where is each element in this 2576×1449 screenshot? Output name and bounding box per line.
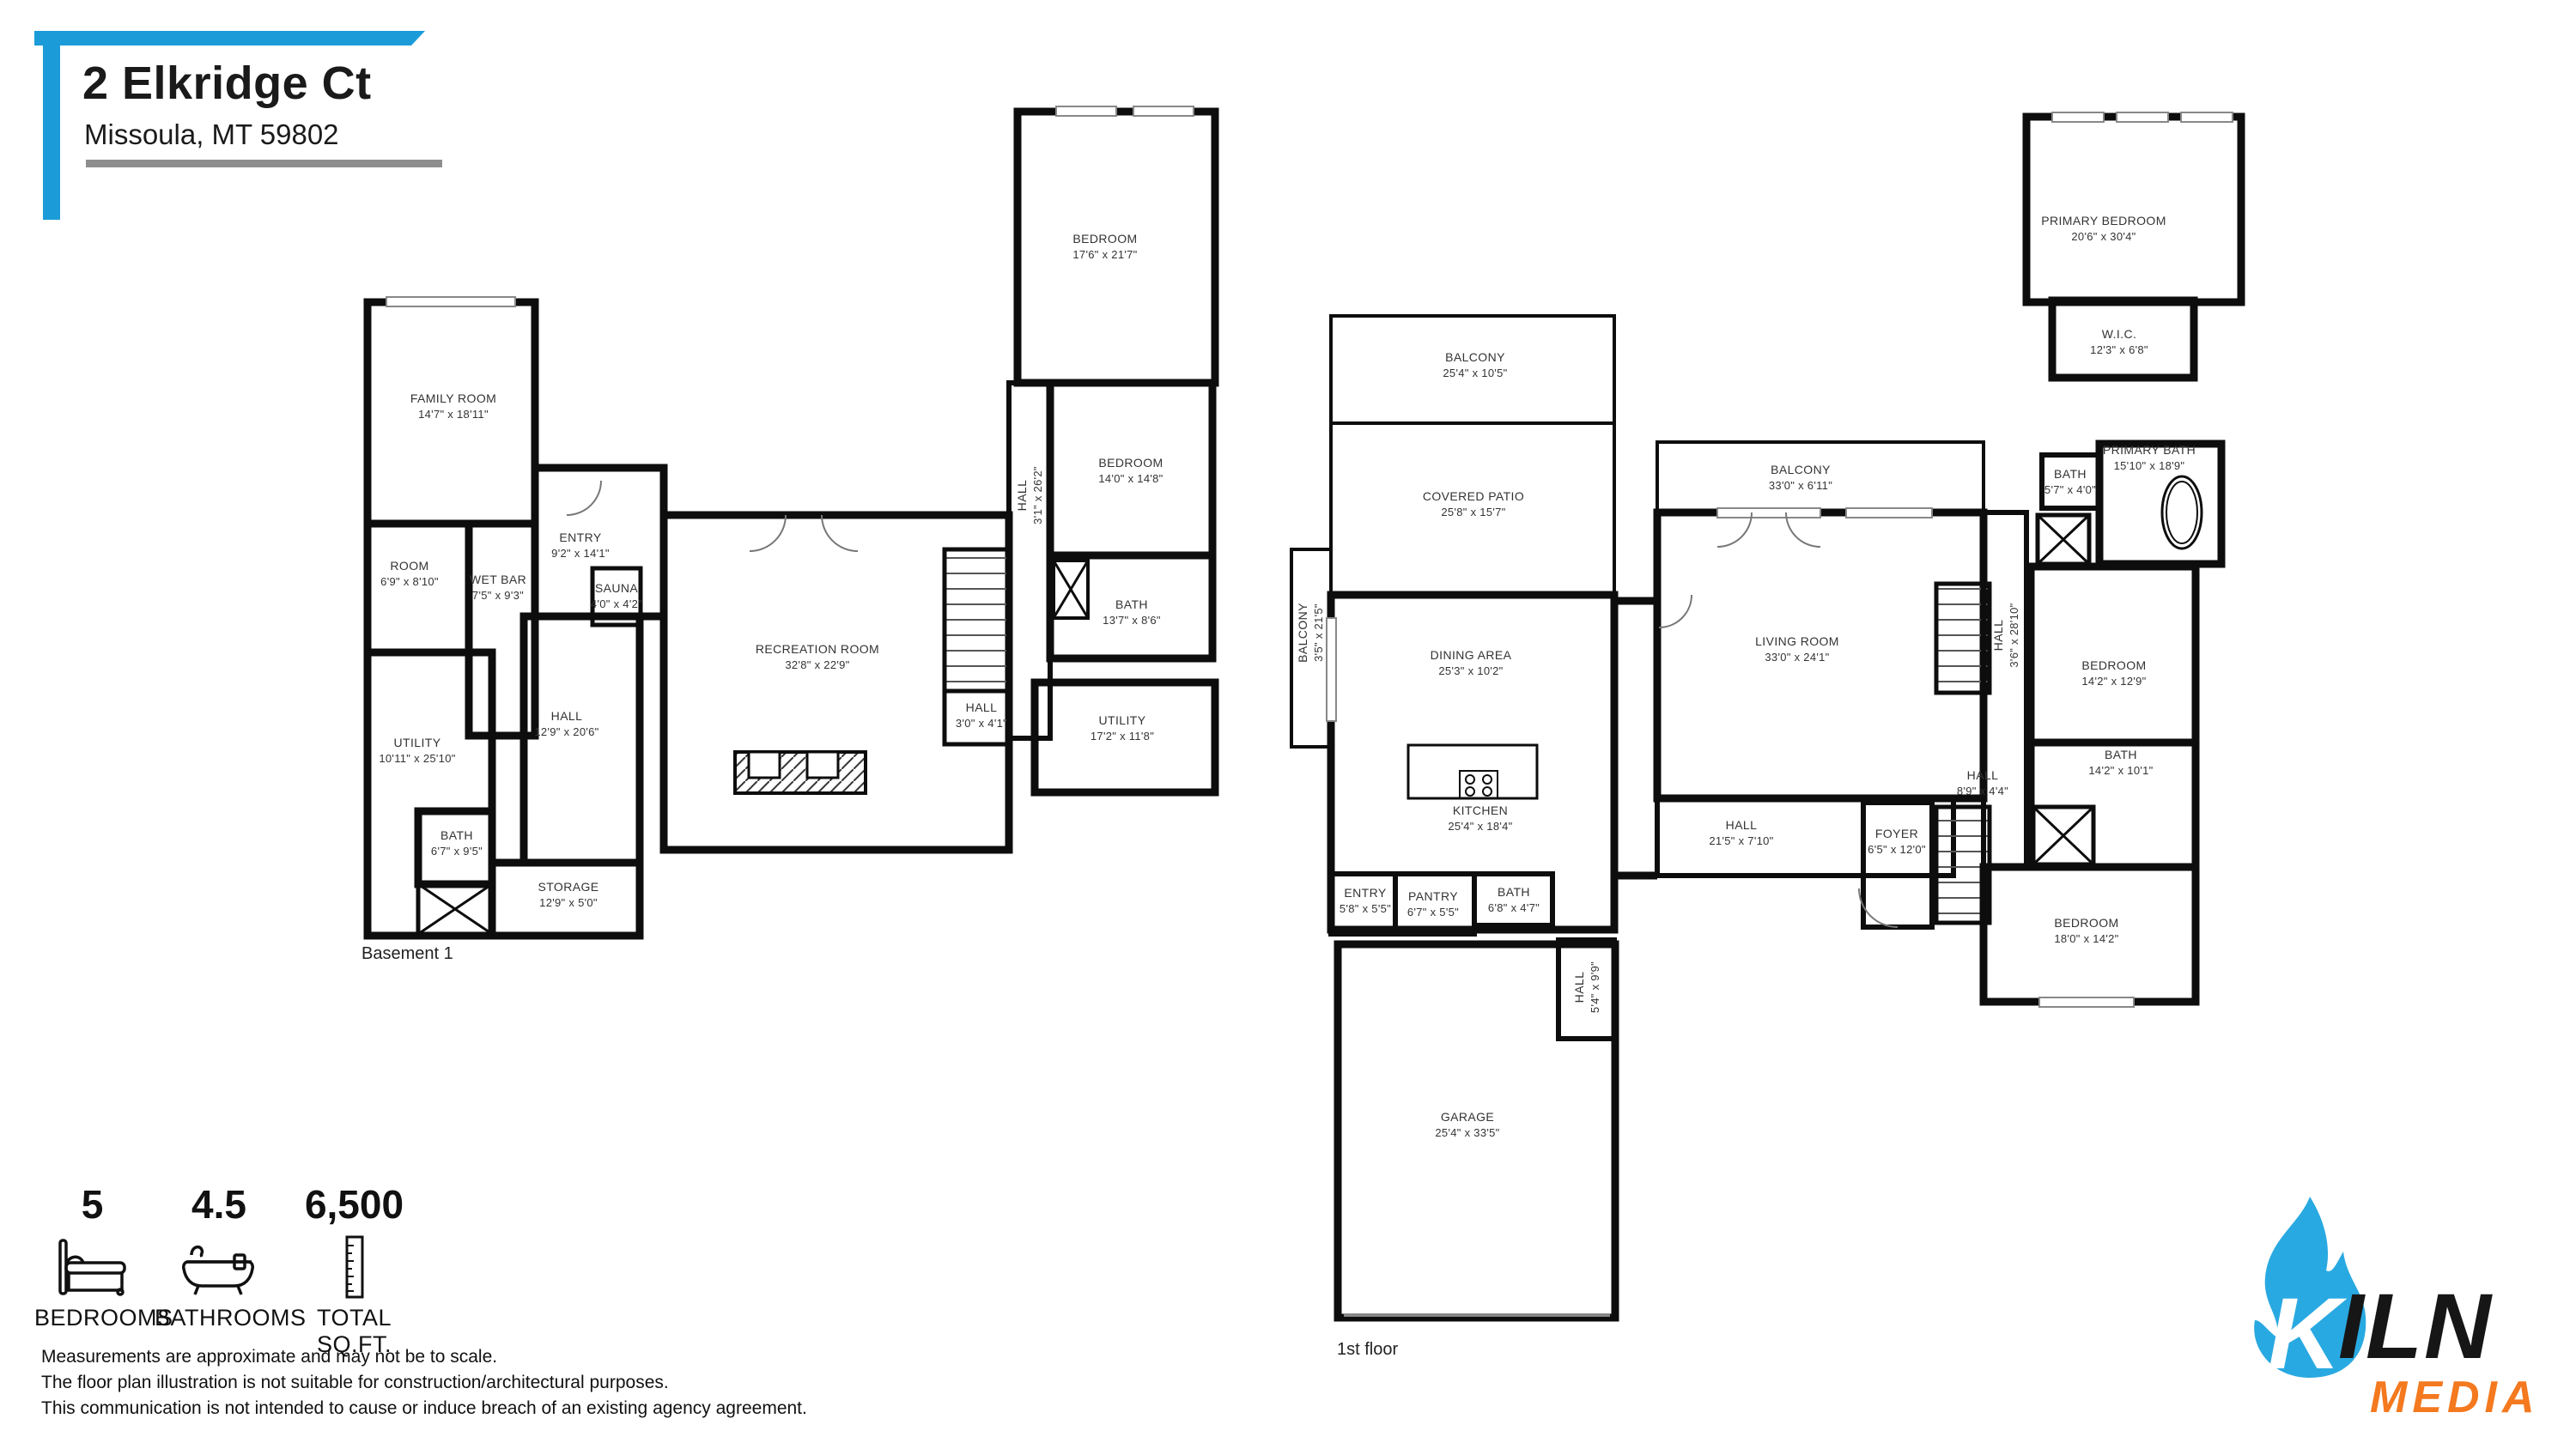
room-label: DINING AREA25'3" x 10'2" [1431, 648, 1512, 677]
room-label: BEDROOM14'0" x 14'8" [1098, 456, 1163, 485]
room-label: UTILITY17'2" x 11'8" [1091, 713, 1154, 743]
room-label: ENTRY9'2" x 14'1" [551, 530, 610, 560]
bed-icon [34, 1234, 150, 1300]
room-label: HALL3'1" x 26'2" [1015, 466, 1044, 524]
bedrooms-label: BEDROOMS [34, 1305, 150, 1331]
room-label: HALL8'9" x 4'4" [1957, 768, 2008, 797]
room-label: BATH6'8" x 4'7" [1488, 885, 1540, 914]
room-label: FOYER6'5" x 12'0" [1868, 827, 1926, 856]
room-label: KITCHEN25'4" x 18'4" [1448, 803, 1512, 833]
stat-sqft: 6,500 TOTAL SQ.FT. [279, 1181, 429, 1358]
room-label: HALL3'6" x 28'10" [1991, 603, 2020, 667]
room-label: BALCONY33'0" x 6'11" [1769, 463, 1832, 492]
room-label: HALL3'0" x 4'1" [956, 700, 1007, 730]
bathrooms-label: BATHROOMS [155, 1305, 283, 1331]
room-label: PANTRY6'7" x 5'5" [1407, 889, 1459, 919]
room-label: GARAGE25'4" x 33'5" [1435, 1110, 1499, 1139]
ruler-icon [279, 1234, 429, 1300]
room-label: BEDROOM17'6" x 21'7" [1072, 232, 1137, 261]
room-label: BATH14'2" x 10'1" [2088, 748, 2153, 777]
room-label: ROOM6'9" x 8'10" [380, 559, 439, 588]
sqft-count: 6,500 [279, 1181, 429, 1228]
first-floor-caption: 1st floor [1337, 1340, 1398, 1360]
disclaimer-line-2: The floor plan illustration is not suita… [41, 1370, 807, 1396]
disclaimer-text: Measurements are approximate and may not… [41, 1344, 807, 1422]
room-label: HALL12'9" x 20'6" [534, 709, 598, 738]
room-label: BEDROOM14'2" x 12'9" [2081, 658, 2146, 688]
floorplan-page: 2 Elkridge Ct Missoula, MT 59802 [0, 0, 2576, 1449]
logo-text-media: MEDIA [2370, 1372, 2540, 1423]
logo-letter-k: K [2268, 1276, 2341, 1392]
logo-text-iln: ILN [2338, 1272, 2493, 1379]
room-label: FAMILY ROOM14'7" x 18'11" [410, 391, 496, 421]
room-label: W.I.C.12'3" x 6'8" [2090, 327, 2148, 356]
disclaimer-line-3: This communication is not intended to ca… [41, 1396, 807, 1422]
room-label: BEDROOM18'0" x 14'2" [2054, 916, 2118, 945]
basement-caption: Basement 1 [361, 944, 453, 964]
room-label: BATH5'7" x 4'0" [2044, 467, 2096, 496]
room-label: HALL5'4" x 9'9" [1572, 961, 1601, 1013]
room-label: PRIMARY BEDROOM20'6" x 30'4" [2041, 214, 2166, 243]
room-label: WET BAR7'5" x 9'3" [470, 573, 526, 602]
room-label: BALCONY3'5" x 21'5" [1296, 603, 1325, 663]
stat-bedrooms: 5 BEDROOMS [34, 1181, 150, 1331]
room-label: RECREATION ROOM32'8" x 22'9" [756, 642, 879, 671]
room-label: PRIMARY BATH15'10" x 18'9" [2103, 443, 2196, 472]
room-label: HALL21'5" x 7'10" [1709, 818, 1773, 847]
bathrooms-count: 4.5 [155, 1181, 283, 1228]
room-label: LIVING ROOM33'0" x 24'1" [1755, 634, 1839, 664]
room-label: BATH13'7" x 8'6" [1103, 597, 1161, 627]
stat-bathrooms: 4.5 BATHROOMS [155, 1181, 283, 1331]
bathtub-icon [155, 1234, 283, 1300]
room-label: SAUNA4'0" x 4'2" [591, 581, 642, 610]
bedrooms-count: 5 [34, 1181, 150, 1228]
room-label: BATH6'7" x 9'5" [431, 828, 483, 858]
room-label: UTILITY10'11" x 25'10" [379, 736, 455, 765]
disclaimer-line-1: Measurements are approximate and may not… [41, 1344, 807, 1370]
room-label: STORAGE12'9" x 5'0" [538, 880, 598, 909]
room-label: BALCONY25'4" x 10'5" [1443, 350, 1507, 379]
room-label: COVERED PATIO25'8" x 15'7" [1423, 489, 1524, 518]
room-label: ENTRY5'8" x 5'5" [1340, 886, 1391, 915]
